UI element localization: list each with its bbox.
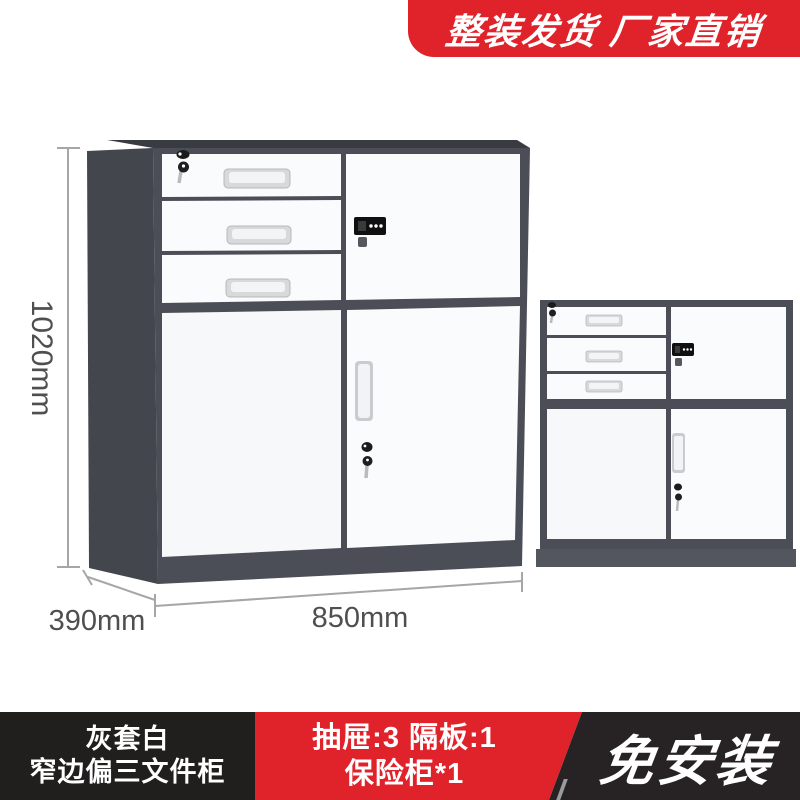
- depth-dimension-label: 390mm: [49, 605, 146, 637]
- main-drawer-2-handle: [227, 226, 291, 244]
- variant-line2: 窄边偏三文件柜: [30, 756, 226, 789]
- small-left-door: [547, 409, 666, 539]
- small-door-lock-icon: [674, 484, 682, 491]
- config-banner: 抽屉:3 隔板:1 保险柜*1: [255, 712, 582, 800]
- main-cabinet-top: [107, 140, 530, 148]
- highlight-text: 免安装: [595, 717, 780, 796]
- small-drawer-3-handle: [586, 381, 622, 392]
- main-cabinet: [87, 140, 530, 584]
- main-drawer-3-handle: [226, 279, 290, 297]
- main-drawer-1-handle: [224, 169, 290, 188]
- small-right-door: [671, 409, 786, 539]
- main-door-handle: [355, 361, 373, 421]
- small-cabinet-base: [536, 549, 796, 567]
- product-illustration: 1020mm 390mm 850mm: [0, 0, 800, 800]
- small-drawer-2-handle: [586, 351, 622, 362]
- main-left-door: [162, 310, 341, 557]
- main-door-lock-icon: [362, 442, 373, 452]
- variant-line1: 灰套白: [86, 723, 170, 756]
- main-right-door: [347, 306, 520, 548]
- height-dimension-label: 1020mm: [25, 300, 58, 417]
- variant-banner: 灰套白 窄边偏三文件柜: [0, 712, 255, 800]
- highlight-banner: 免安装: [549, 712, 800, 800]
- small-drawer-1-handle: [586, 315, 622, 326]
- config-line1: 抽屉:3 隔板:1: [312, 720, 497, 756]
- page: 整装发货 厂家直销: [0, 0, 800, 800]
- config-line2: 保险柜*1: [345, 756, 464, 792]
- main-cabinet-side: [87, 148, 158, 584]
- main-drawer-lock-icon: [177, 150, 190, 159]
- small-door-handle: [672, 433, 685, 473]
- small-cabinet: [536, 300, 796, 567]
- width-dimension-label: 850mm: [312, 602, 409, 634]
